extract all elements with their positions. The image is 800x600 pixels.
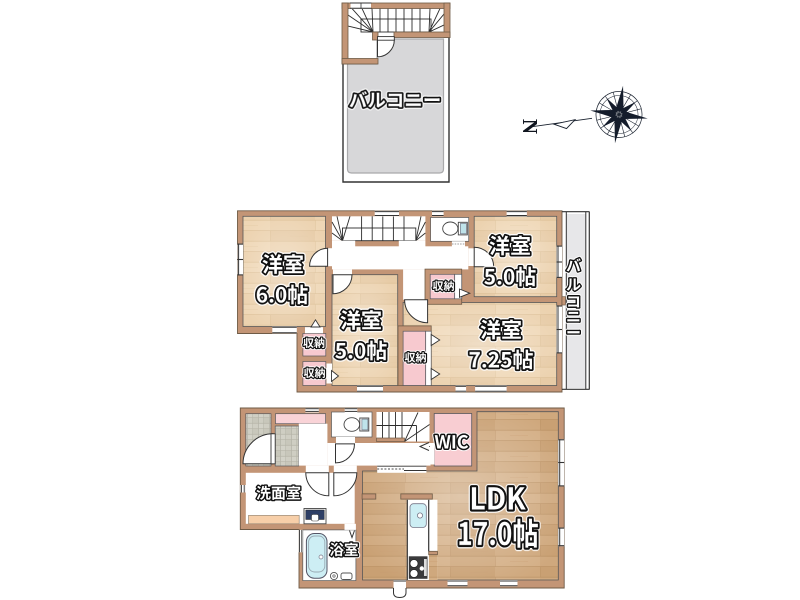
svg-text:N: N xyxy=(518,119,542,134)
